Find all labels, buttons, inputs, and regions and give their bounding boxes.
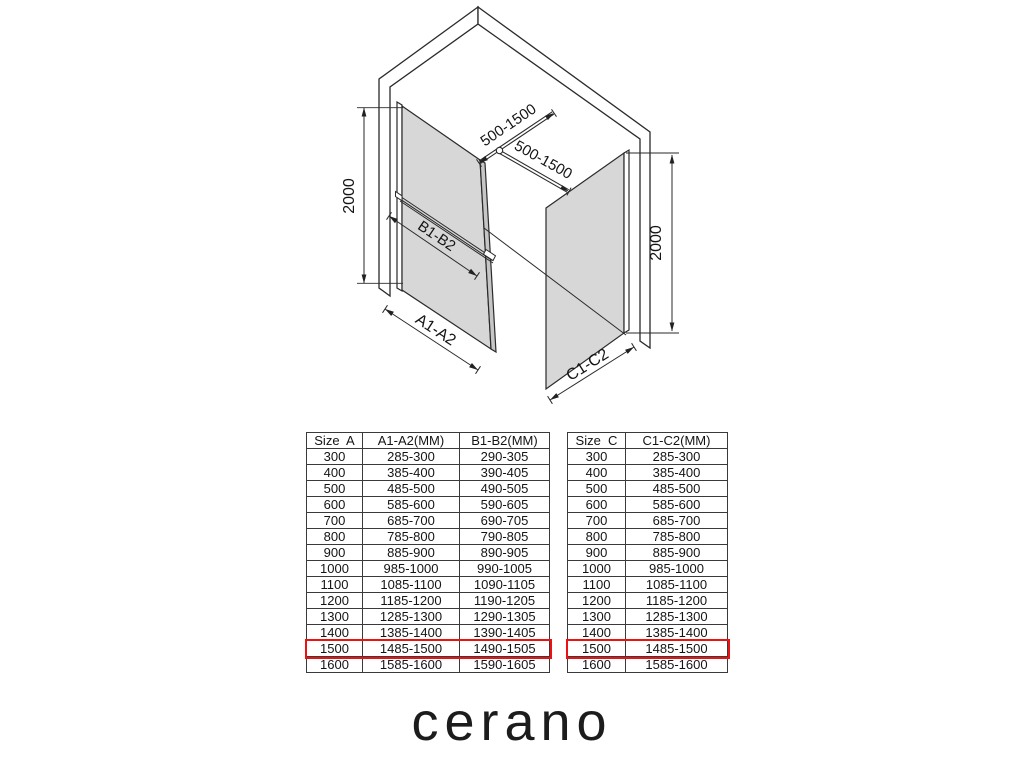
table-cell: 500 <box>568 481 626 497</box>
table-row: 13001285-1300 <box>568 609 728 625</box>
table-cell: 700 <box>568 513 626 529</box>
table-cell: 985-1000 <box>363 561 460 577</box>
table-row: 700685-700690-705 <box>307 513 550 529</box>
bar-connector <box>496 147 502 153</box>
table-cell: 885-900 <box>363 545 460 561</box>
table-cell: 800 <box>568 529 626 545</box>
table-row: 14001385-1400 <box>568 625 728 641</box>
table-row: 16001585-1600 <box>568 657 728 673</box>
table-cell: 1385-1400 <box>626 625 728 641</box>
table-cell: 385-400 <box>363 465 460 481</box>
table-cell: 1500 <box>568 641 626 657</box>
table-cell: 785-800 <box>363 529 460 545</box>
table-row: 12001185-1200 <box>568 593 728 609</box>
table-header-row: Size AA1-A2(MM)B1-B2(MM) <box>307 433 550 449</box>
table-header-row: Size CC1-C2(MM) <box>568 433 728 449</box>
table-cell: 685-700 <box>626 513 728 529</box>
table-row: 14001385-14001390-1405 <box>307 625 550 641</box>
table-row: 1000985-1000990-1005 <box>307 561 550 577</box>
table-cell: 290-305 <box>460 449 550 465</box>
table-cell: 400 <box>307 465 363 481</box>
table-cell: 1085-1100 <box>626 577 728 593</box>
table-row: 700685-700 <box>568 513 728 529</box>
table-cell: 790-805 <box>460 529 550 545</box>
table-row: 15001485-15001490-1505 <box>307 641 550 657</box>
table-row: 400385-400 <box>568 465 728 481</box>
table-row: 13001285-13001290-1305 <box>307 609 550 625</box>
table-cell: 1400 <box>307 625 363 641</box>
table-cell: 1600 <box>307 657 363 673</box>
table-cell: 1290-1305 <box>460 609 550 625</box>
table-row: 16001585-16001590-1605 <box>307 657 550 673</box>
table-cell: 1185-1200 <box>363 593 460 609</box>
table-cell: 1300 <box>568 609 626 625</box>
table-cell: 985-1000 <box>626 561 728 577</box>
table-cell: 1600 <box>568 657 626 673</box>
column-header: A1-A2(MM) <box>363 433 460 449</box>
table-cell: 900 <box>568 545 626 561</box>
table-cell: 1100 <box>568 577 626 593</box>
table-cell: 700 <box>307 513 363 529</box>
table-cell: 390-405 <box>460 465 550 481</box>
wall-profile-right <box>624 150 629 333</box>
table-cell: 1085-1100 <box>363 577 460 593</box>
table-cell: 585-600 <box>626 497 728 513</box>
table-row: 11001085-1100 <box>568 577 728 593</box>
table-cell: 385-400 <box>626 465 728 481</box>
table-cell: 1485-1500 <box>363 641 460 657</box>
table-cell: 1585-1600 <box>626 657 728 673</box>
table-cell: 600 <box>568 497 626 513</box>
column-header: Size A <box>307 433 363 449</box>
table-row: 800785-800 <box>568 529 728 545</box>
column-header: Size C <box>568 433 626 449</box>
table-row: 500485-500490-505 <box>307 481 550 497</box>
isometric-shower-diagram: 2000 2000 500-1500 500-1500 B1-B2 A1-A2 … <box>0 0 1024 430</box>
glass-panel-right-group <box>546 150 629 389</box>
table-row: 900885-900890-905 <box>307 545 550 561</box>
table-row: 15001485-1500 <box>568 641 728 657</box>
table-cell: 485-500 <box>626 481 728 497</box>
table-cell: 890-905 <box>460 545 550 561</box>
table-cell: 485-500 <box>363 481 460 497</box>
table-cell: 1285-1300 <box>363 609 460 625</box>
table-cell: 585-600 <box>363 497 460 513</box>
table-cell: 1500 <box>307 641 363 657</box>
size-table-c: Size CC1-C2(MM) 300285-300400385-4005004… <box>567 432 728 673</box>
table-cell: 785-800 <box>626 529 728 545</box>
product-spec-sheet: 2000 2000 500-1500 500-1500 B1-B2 A1-A2 … <box>0 0 1024 768</box>
table-cell: 1285-1300 <box>626 609 728 625</box>
table-cell: 1200 <box>568 593 626 609</box>
table-cell: 1400 <box>568 625 626 641</box>
table-row: 900885-900 <box>568 545 728 561</box>
table-cell: 900 <box>307 545 363 561</box>
table-cell: 685-700 <box>363 513 460 529</box>
table-cell: 800 <box>307 529 363 545</box>
table-cell: 400 <box>568 465 626 481</box>
table-cell: 885-900 <box>626 545 728 561</box>
table-cell: 1100 <box>307 577 363 593</box>
table-row: 300285-300 <box>568 449 728 465</box>
dim-height-right-label: 2000 <box>648 225 665 261</box>
column-header: C1-C2(MM) <box>626 433 728 449</box>
table-row: 300285-300290-305 <box>307 449 550 465</box>
table-row: 800785-800790-805 <box>307 529 550 545</box>
column-header: B1-B2(MM) <box>460 433 550 449</box>
table-cell: 300 <box>307 449 363 465</box>
table-cell: 690-705 <box>460 513 550 529</box>
table-cell: 300 <box>568 449 626 465</box>
table-row: 12001185-12001190-1205 <box>307 593 550 609</box>
table-row: 500485-500 <box>568 481 728 497</box>
glass-panel-right <box>546 153 624 389</box>
table-cell: 1000 <box>568 561 626 577</box>
table-cell: 1585-1600 <box>363 657 460 673</box>
table-cell: 1200 <box>307 593 363 609</box>
table-cell: 1190-1205 <box>460 593 550 609</box>
table-row: 1000985-1000 <box>568 561 728 577</box>
table-cell: 285-300 <box>363 449 460 465</box>
table-cell: 1485-1500 <box>626 641 728 657</box>
table-cell: 600 <box>307 497 363 513</box>
support-bar-2-label: 500-1500 <box>511 137 575 183</box>
table-cell: 1185-1200 <box>626 593 728 609</box>
table-row: 600585-600590-605 <box>307 497 550 513</box>
table-row: 11001085-11001090-1105 <box>307 577 550 593</box>
table-cell: 1300 <box>307 609 363 625</box>
table-cell: 1000 <box>307 561 363 577</box>
table-cell: 590-605 <box>460 497 550 513</box>
table-cell: 285-300 <box>626 449 728 465</box>
brand-logo: cerano <box>0 692 1024 752</box>
table-cell: 1590-1605 <box>460 657 550 673</box>
table-cell: 490-505 <box>460 481 550 497</box>
table-cell: 1490-1505 <box>460 641 550 657</box>
size-table-a: Size AA1-A2(MM)B1-B2(MM) 300285-300290-3… <box>306 432 550 673</box>
table-cell: 500 <box>307 481 363 497</box>
table-row: 400385-400390-405 <box>307 465 550 481</box>
table-cell: 1390-1405 <box>460 625 550 641</box>
table-cell: 990-1005 <box>460 561 550 577</box>
table-cell: 1090-1105 <box>460 577 550 593</box>
dim-height-left-label: 2000 <box>341 178 358 214</box>
table-row: 600585-600 <box>568 497 728 513</box>
table-cell: 1385-1400 <box>363 625 460 641</box>
